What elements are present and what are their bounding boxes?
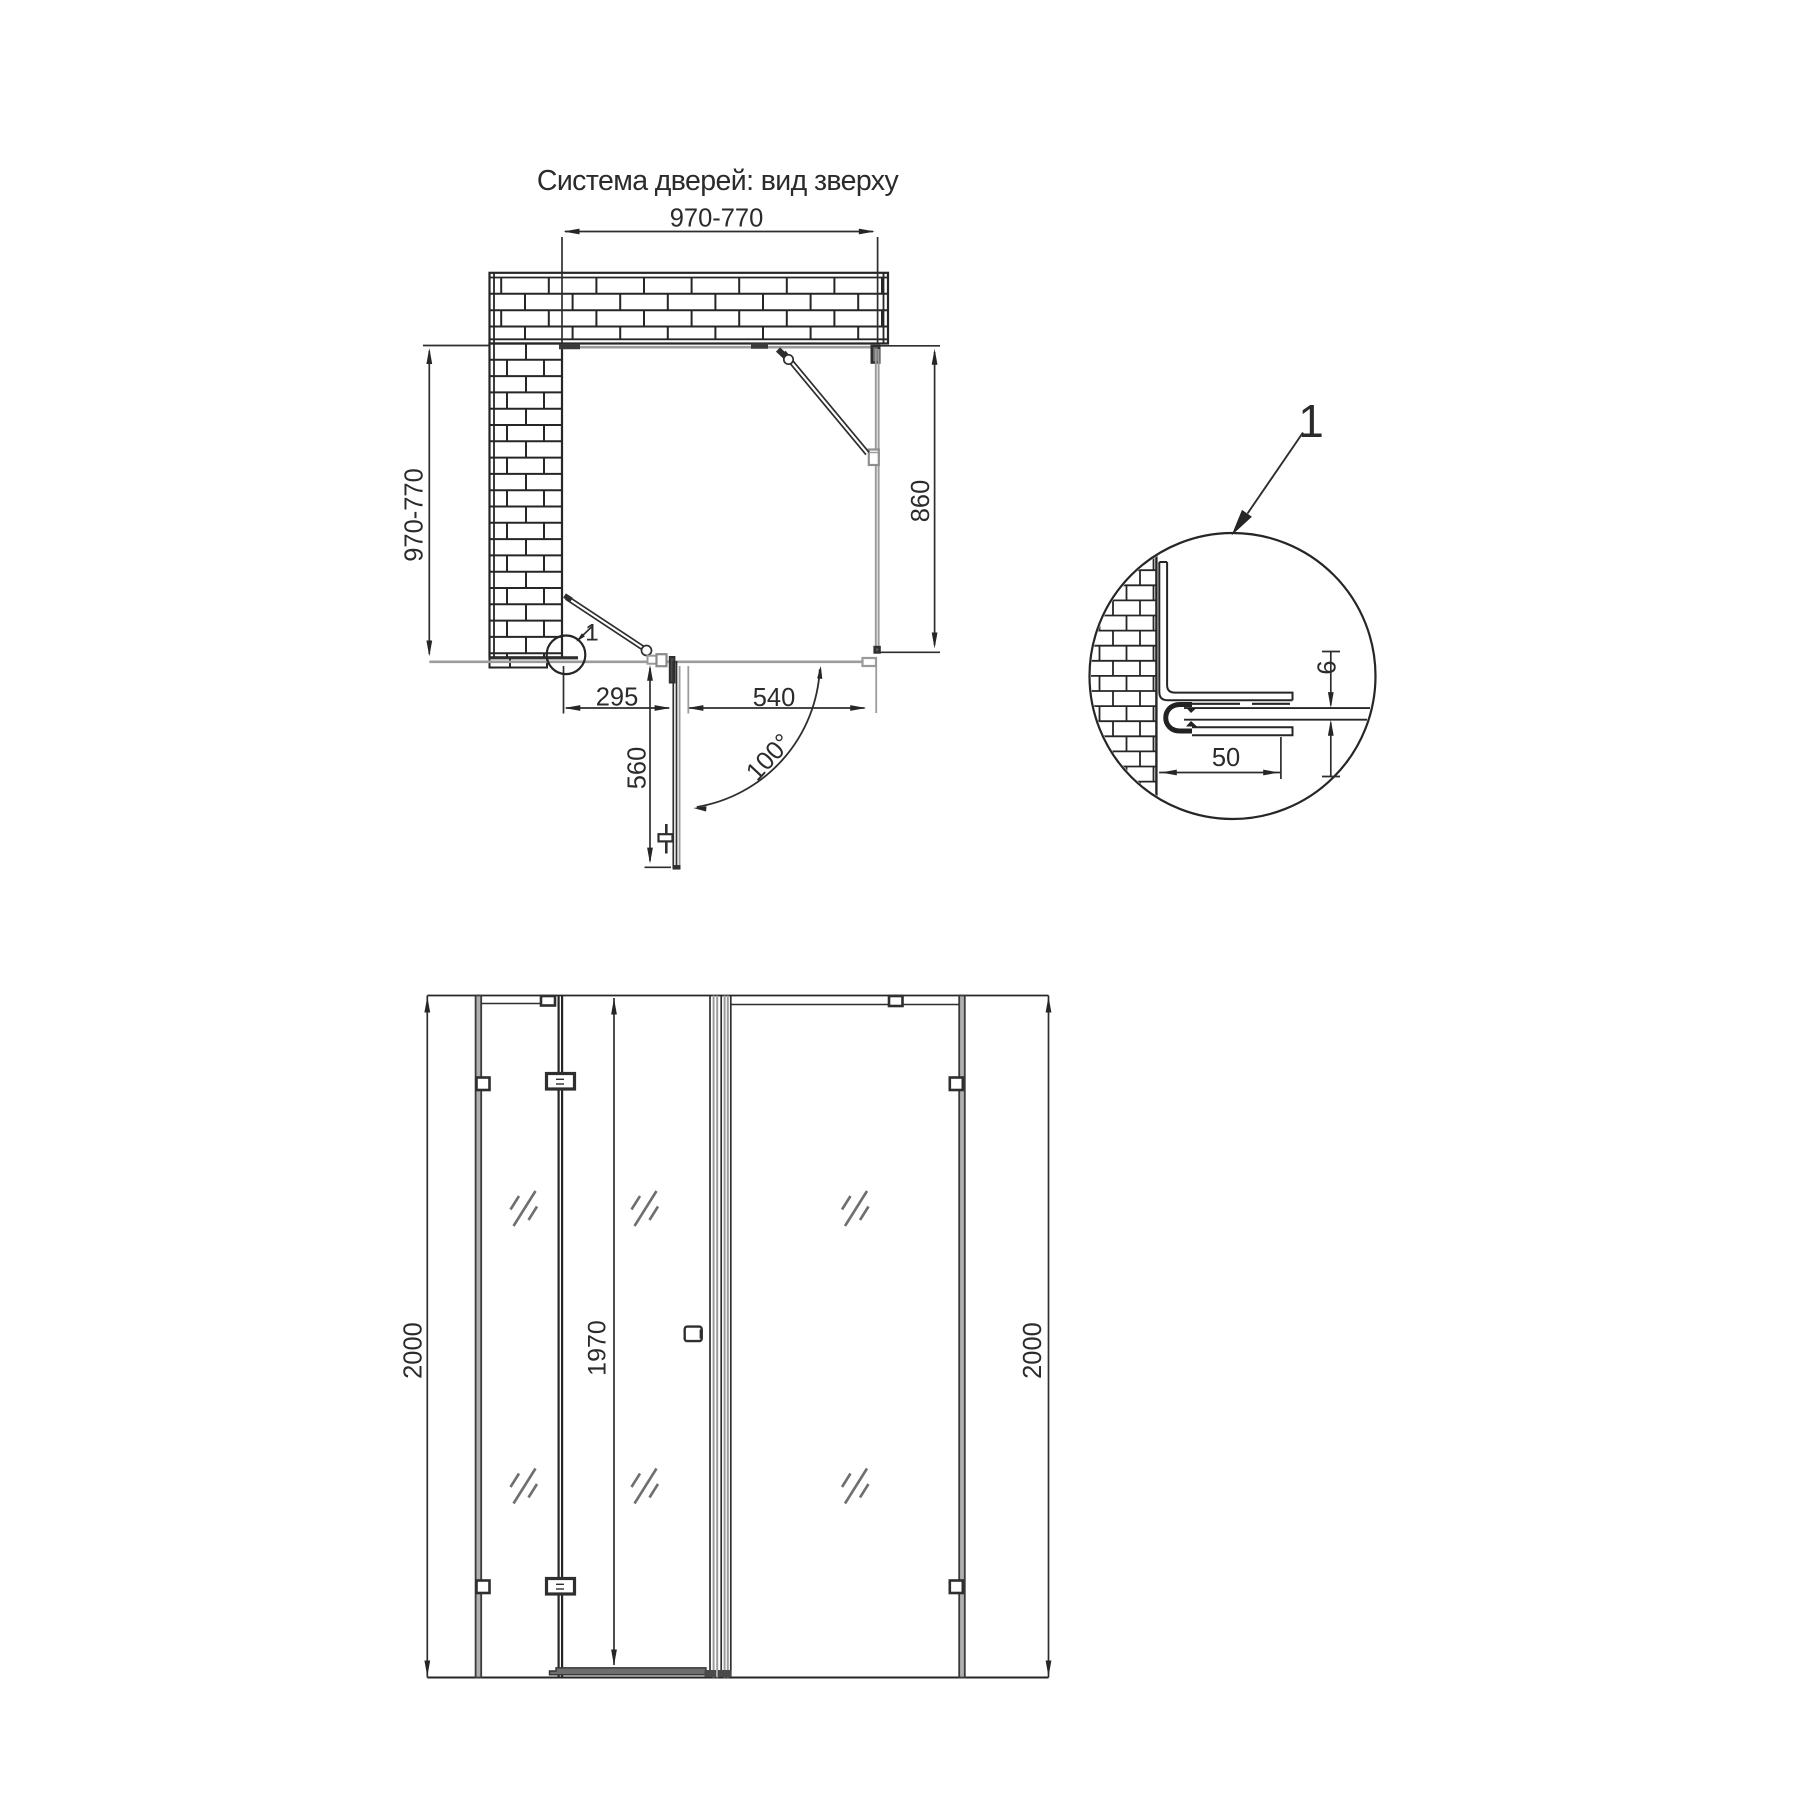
svg-text:Система дверей: вид зверху: Система дверей: вид зверху	[537, 165, 900, 197]
svg-text:1: 1	[1298, 395, 1324, 447]
svg-text:50: 50	[1212, 744, 1240, 772]
svg-text:860: 860	[907, 480, 935, 523]
svg-text:560: 560	[624, 747, 652, 790]
svg-text:2000: 2000	[400, 1322, 428, 1379]
svg-text:2000: 2000	[1019, 1322, 1047, 1379]
svg-text:1970: 1970	[584, 1320, 612, 1376]
svg-text:970-770: 970-770	[400, 468, 428, 562]
svg-text:1: 1	[585, 620, 599, 647]
svg-text:970-770: 970-770	[670, 205, 764, 233]
svg-text:6: 6	[1314, 660, 1342, 674]
